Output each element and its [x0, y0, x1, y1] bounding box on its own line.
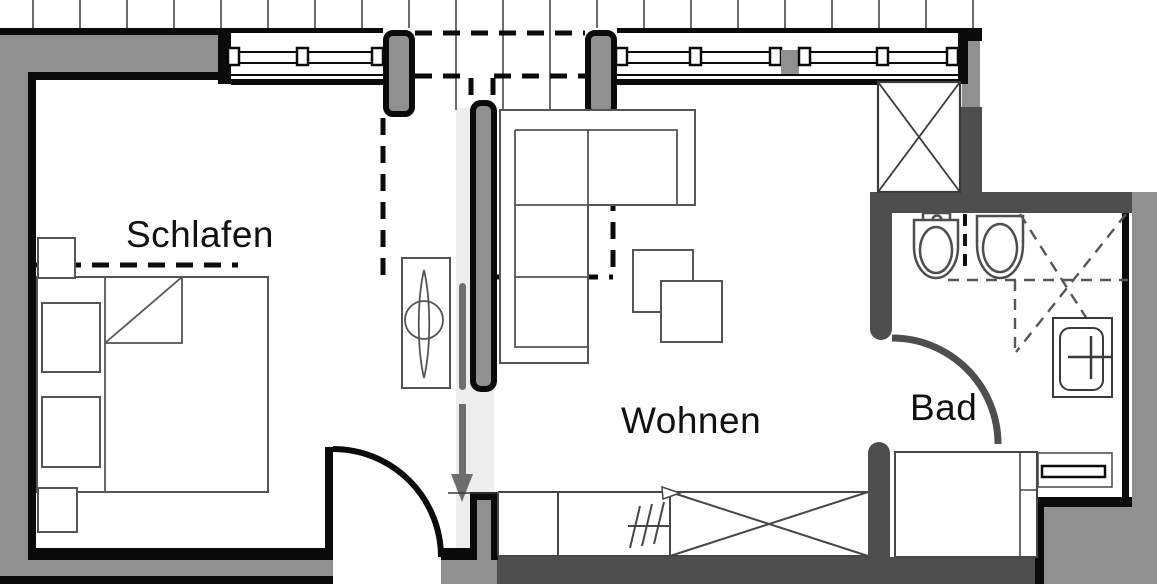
- dishwasher-mark: [628, 502, 670, 548]
- bathtub: [895, 452, 1037, 557]
- bedroom-window: [228, 28, 383, 85]
- tv-cabinet: [402, 258, 450, 388]
- bidet: [914, 213, 958, 278]
- nightstand: [42, 303, 100, 372]
- towel-shelf: [1038, 453, 1112, 487]
- room-label-living: Wohnen: [621, 400, 761, 442]
- floor-plan: Schlafen Wohnen Bad: [0, 0, 1157, 584]
- entry-wall: [470, 492, 498, 560]
- coffee-table: [661, 281, 722, 342]
- terrace-opening-dashed: [415, 33, 585, 102]
- roof-hatch-ticks: [33, 0, 973, 28]
- toilet: [977, 216, 1023, 278]
- shaft-x-box: [878, 82, 960, 192]
- terrace-pier-left: [386, 33, 412, 114]
- room-label-bedroom: Schlafen: [126, 214, 274, 256]
- bedroom-door: [325, 447, 441, 559]
- bedroom-door-swing: [333, 449, 441, 557]
- terrace-pier-right: [588, 33, 614, 114]
- floor-plan-drawing: [0, 0, 1157, 584]
- stool: [38, 488, 77, 532]
- terrace-planks: [456, 28, 550, 110]
- sideboard-row: [498, 487, 868, 556]
- washbasin: [1053, 318, 1112, 397]
- nightstand: [42, 397, 100, 467]
- nightstand-top: [38, 238, 75, 278]
- wardrobe-x-cabinet: [662, 487, 868, 556]
- bed: [37, 277, 268, 492]
- partition-wall: [473, 103, 494, 389]
- living-window: [616, 28, 958, 85]
- room-label-bath: Bad: [910, 387, 977, 429]
